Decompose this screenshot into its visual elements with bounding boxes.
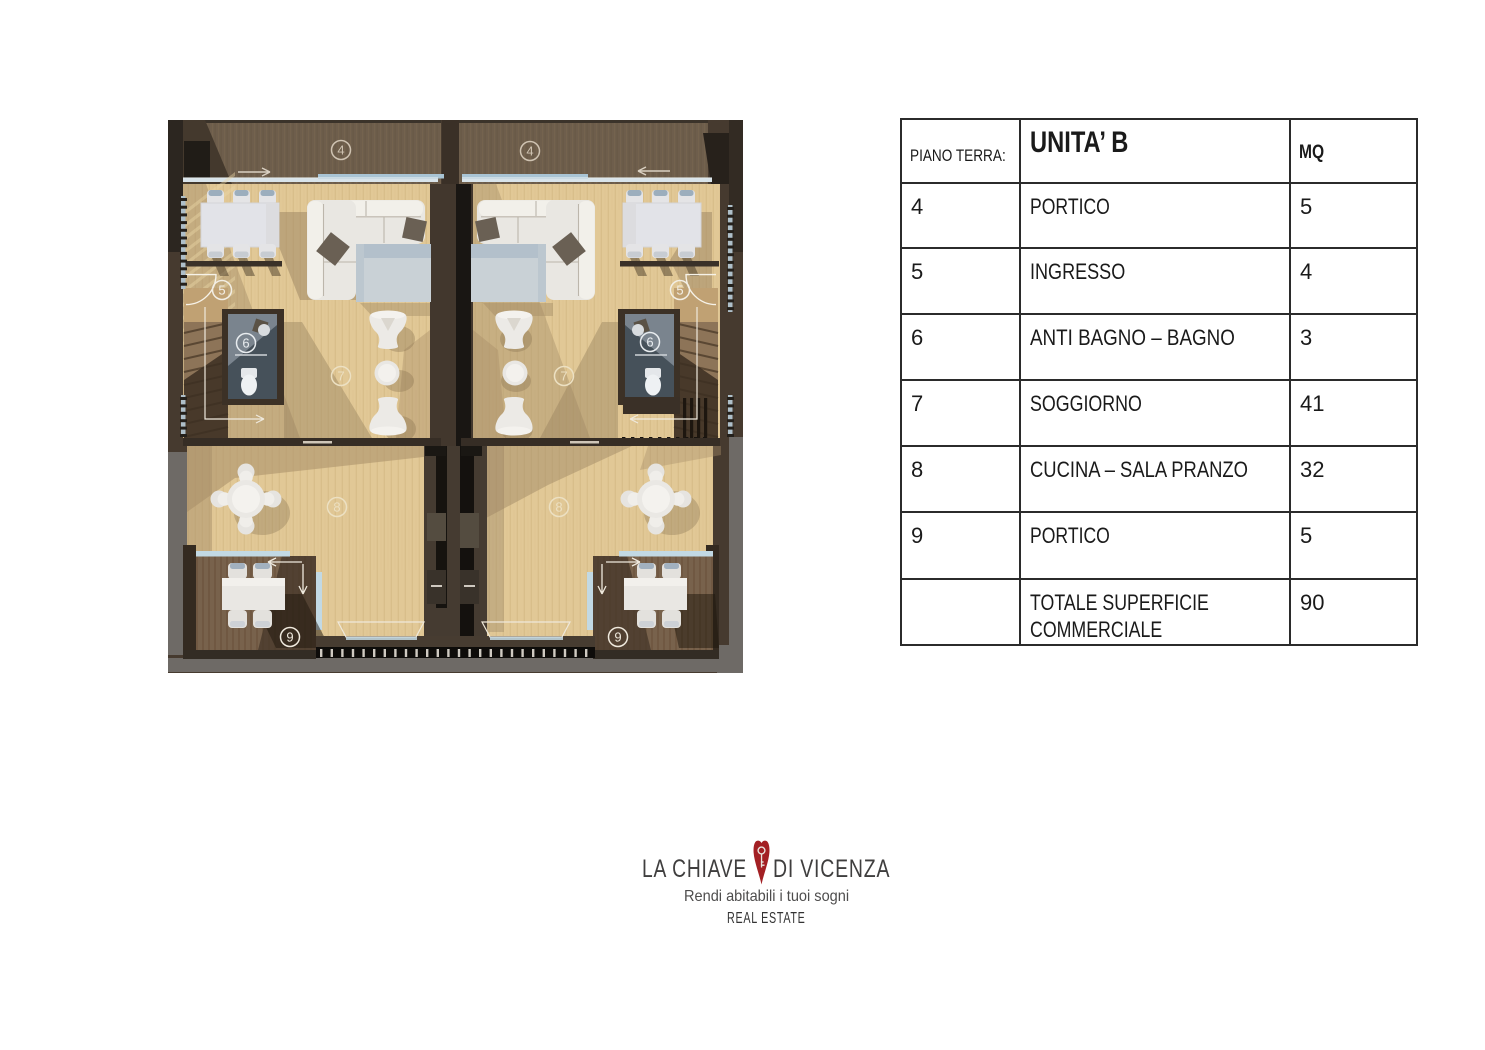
- svg-text:5: 5: [218, 283, 225, 298]
- svg-text:9: 9: [614, 630, 621, 645]
- svg-text:4: 4: [526, 144, 533, 159]
- svg-text:9: 9: [286, 630, 293, 645]
- svg-text:7: 7: [337, 369, 344, 384]
- svg-text:6: 6: [646, 335, 653, 350]
- svg-text:8: 8: [333, 500, 340, 515]
- svg-text:4: 4: [337, 143, 344, 158]
- svg-text:8: 8: [555, 500, 562, 515]
- svg-text:5: 5: [676, 283, 683, 298]
- svg-text:7: 7: [560, 369, 567, 384]
- svg-text:6: 6: [242, 336, 249, 351]
